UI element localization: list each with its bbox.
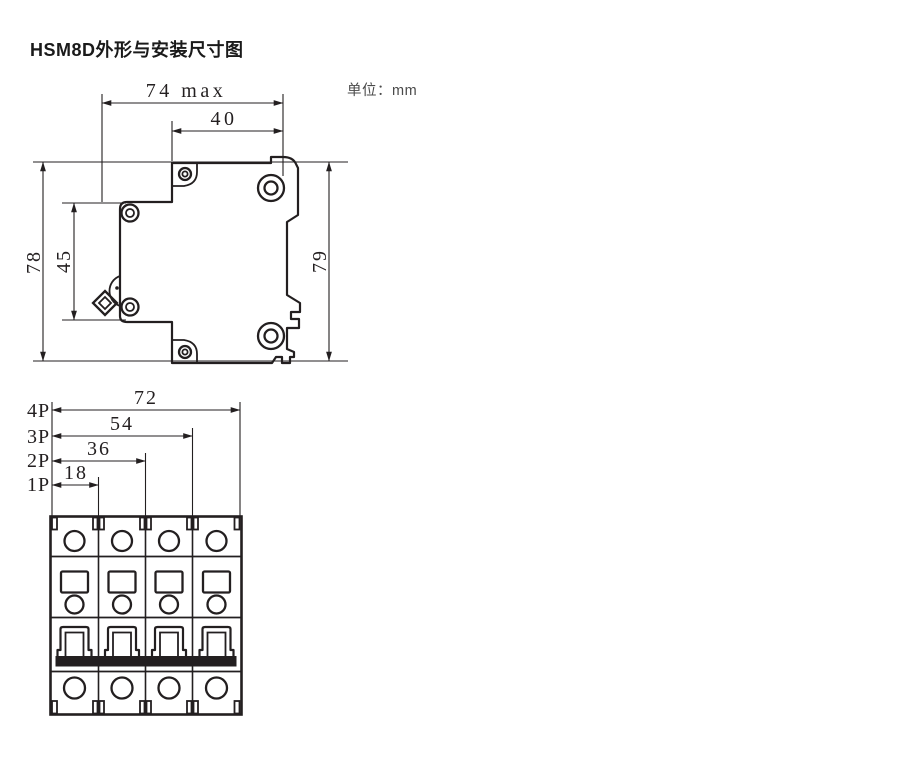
dim-label-front-height: 78 xyxy=(23,250,45,274)
dim-label-2p-width: 36 xyxy=(87,438,111,460)
dim-label-1p-width: 18 xyxy=(64,462,88,484)
dim-label-overall-height: 79 xyxy=(309,249,331,273)
side-view-drawing: 74 max 40 78 45 79 xyxy=(23,80,348,363)
toggle-lever xyxy=(93,276,120,315)
bottom-mounting-tabs xyxy=(52,701,240,714)
dim-label-handle-span: 45 xyxy=(53,249,75,273)
terminal-screw-top xyxy=(258,175,284,201)
bottom-screw-tab xyxy=(172,340,197,362)
dim-label-3p-width: 54 xyxy=(110,413,134,435)
terminal-screw-bottom xyxy=(258,323,284,349)
dim-label-mounting-width: 40 xyxy=(211,108,238,130)
handle-tie-bar xyxy=(56,656,237,667)
top-screw-tab xyxy=(172,164,197,186)
pole-label-4p: 4P xyxy=(27,400,50,422)
dim-label-4p-width: 72 xyxy=(134,387,158,409)
dim-label-overall-width: 74 max xyxy=(146,80,226,102)
front-view-drawing: 4P 3P 2P 1P 72 54 36 18 xyxy=(27,387,242,715)
top-mounting-tabs xyxy=(52,518,240,530)
front-screw-upper xyxy=(122,205,139,222)
front-screw-lower xyxy=(122,299,139,316)
pole-label-3p: 3P xyxy=(27,426,50,448)
pole-label-1p: 1P xyxy=(27,474,50,496)
dimension-drawing-canvas: 74 max 40 78 45 79 xyxy=(0,0,900,757)
side-view-body-outline xyxy=(120,157,300,363)
pole-label-2p: 2P xyxy=(27,450,50,472)
drawing-page: HSM8D外形与安装尺寸图 单位：mm 74 max xyxy=(0,0,900,757)
